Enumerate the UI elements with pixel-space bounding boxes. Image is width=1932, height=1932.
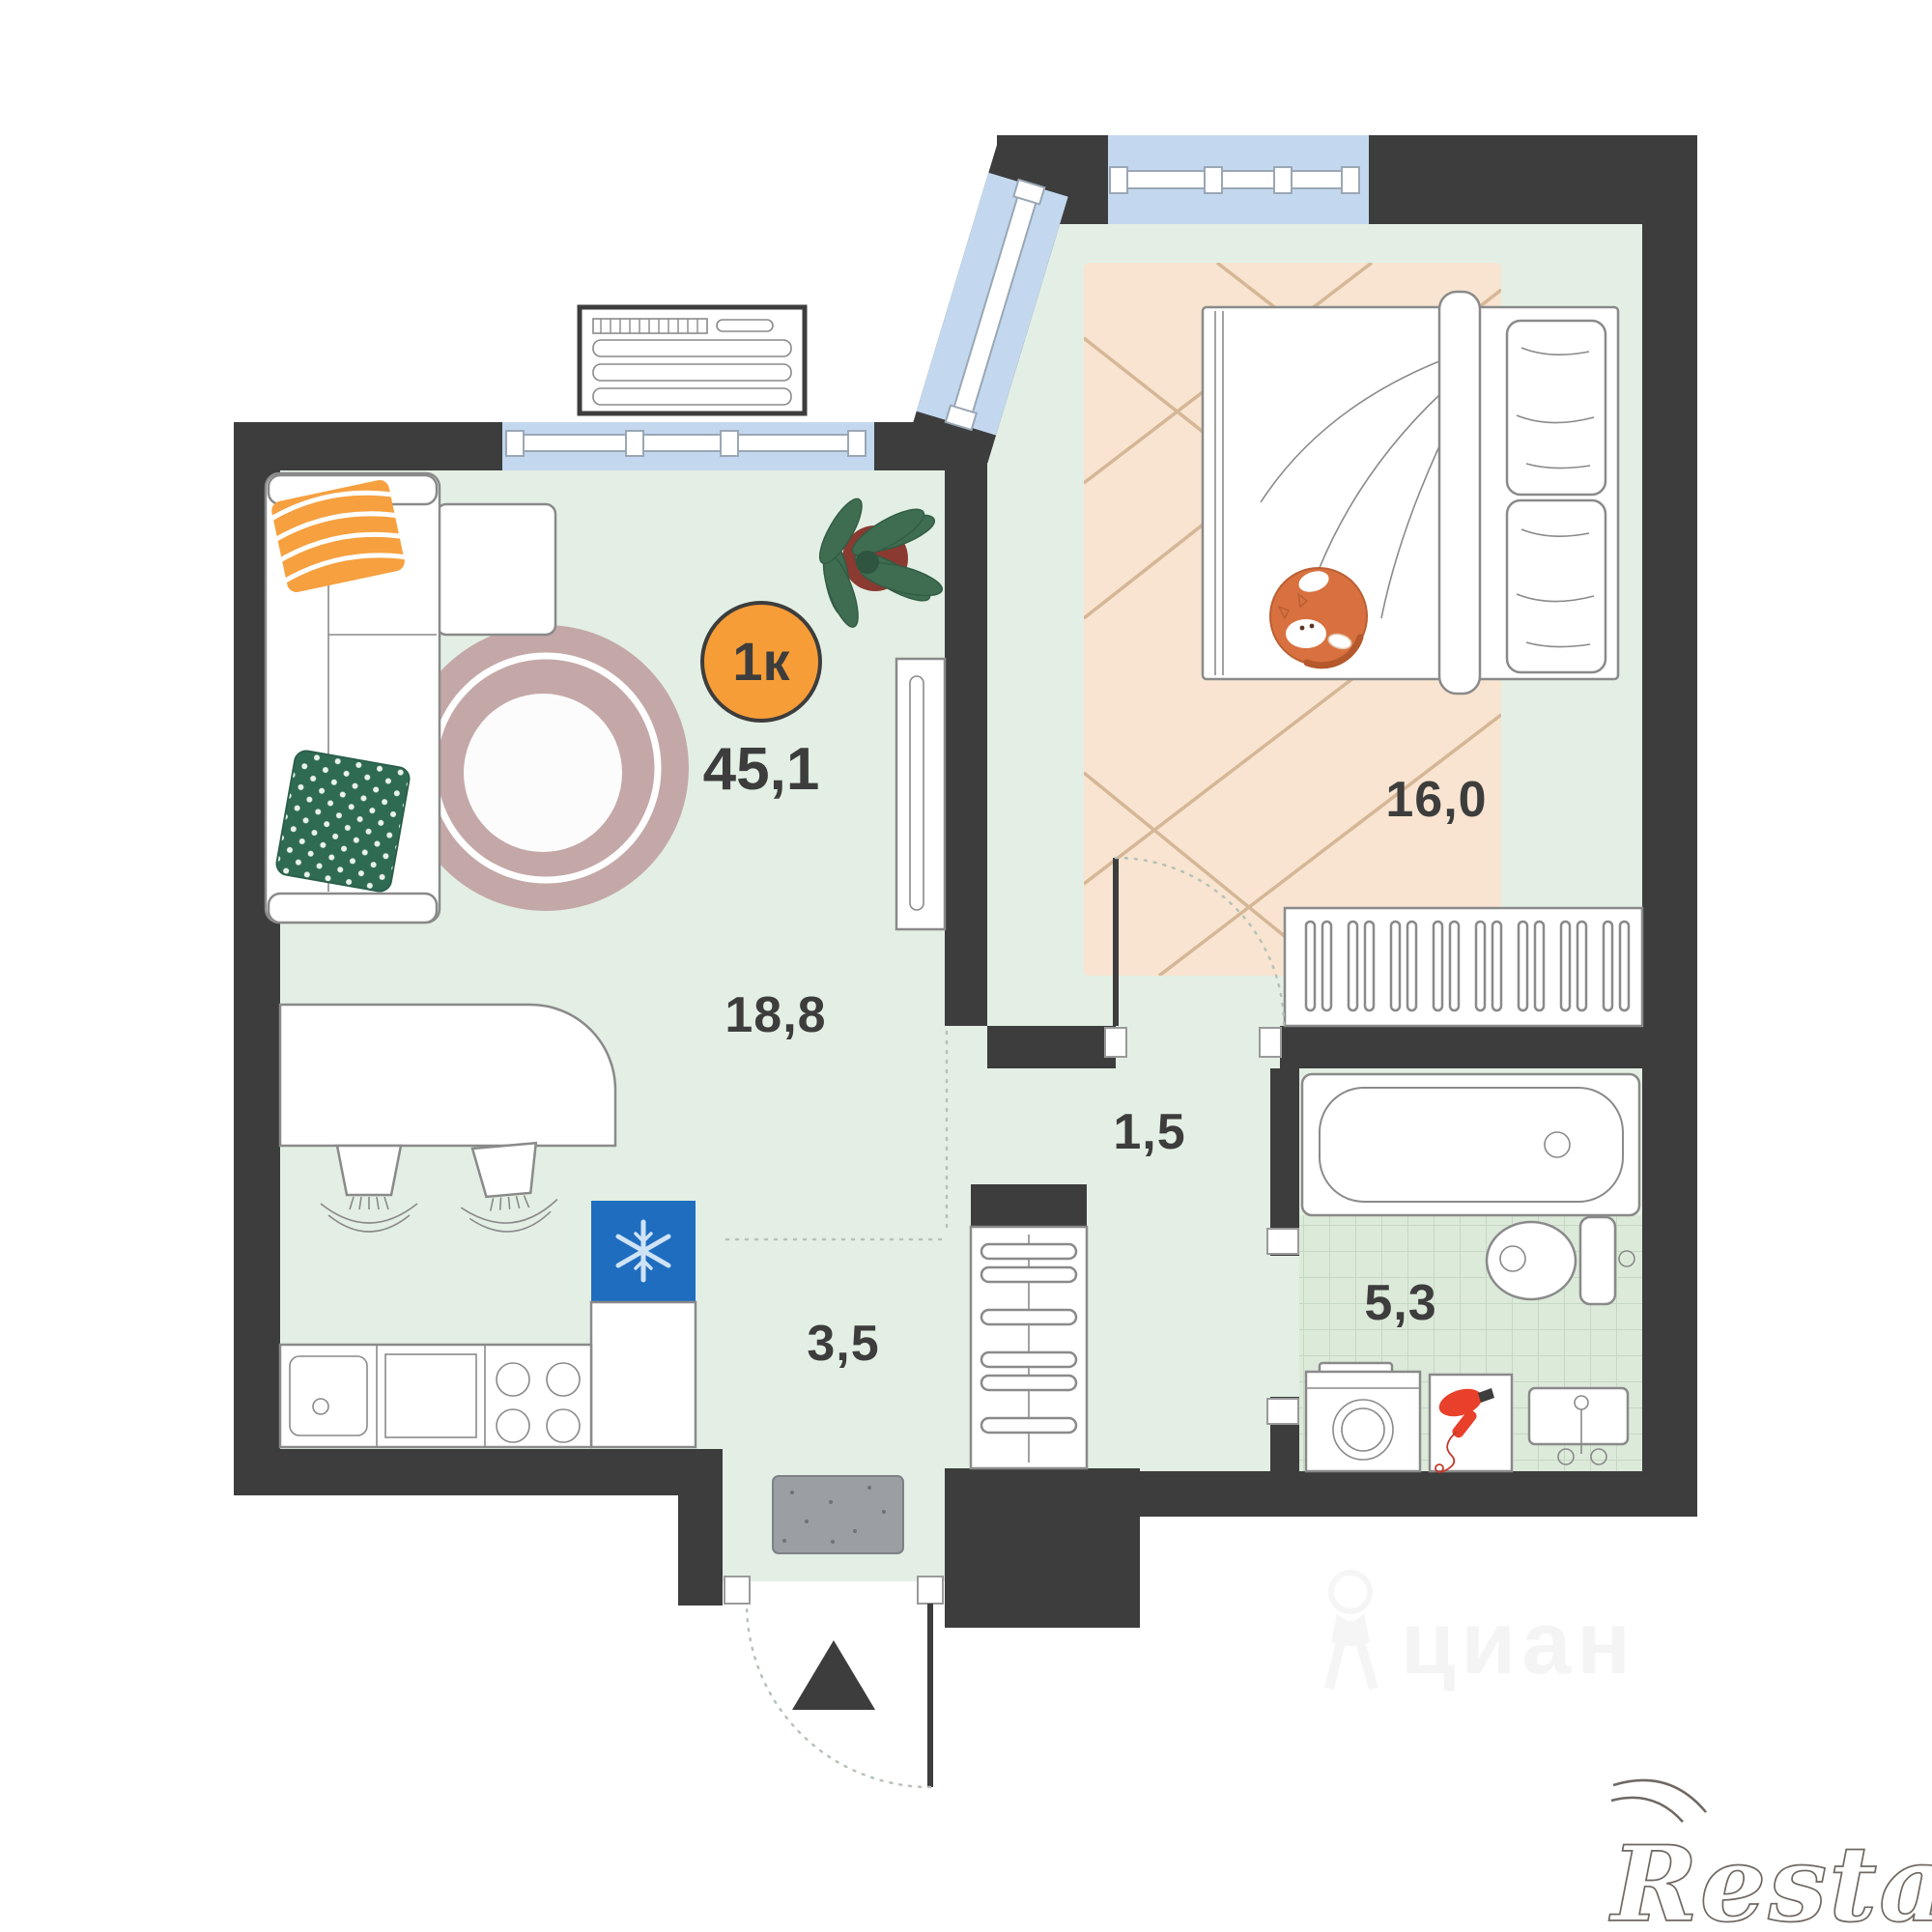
wall-entry-left: [678, 1449, 723, 1605]
cat-icon: [1270, 568, 1367, 666]
vanity-hairdryer: [1430, 1375, 1512, 1472]
bedroom-window: [1108, 135, 1369, 224]
floorplan: 1к 45,1 18,8 16,0 1,5 3,5 5,3 циан Resta…: [0, 0, 1932, 1932]
ac-unit-icon: [580, 307, 805, 413]
wall-living-right: [945, 454, 987, 1026]
living-area-label: 18,8: [724, 987, 826, 1043]
round-rug: [403, 625, 689, 911]
tv-console: [896, 659, 945, 929]
entrance-door: [724, 1577, 943, 1787]
dining-table: [280, 1005, 615, 1146]
wall-bedroom-bottom-right: [1280, 1026, 1642, 1068]
wall-bathroom-left-upper: [1270, 1068, 1299, 1256]
hallway-area-label: 1,5: [1113, 1104, 1185, 1160]
total-area-label: 45,1: [703, 736, 820, 803]
sofa-armrest-bottom: [269, 894, 437, 923]
living-window: [502, 422, 874, 470]
toilet: [1487, 1217, 1634, 1304]
pillow-green: [275, 750, 412, 894]
wall-bedroom-top-right: [1369, 135, 1642, 224]
kitchen-cabinet-tall: [591, 1302, 696, 1447]
wardrobe-slatted: [1285, 908, 1642, 1026]
bedroom-area-label: 16,0: [1385, 772, 1487, 828]
entry-area-label: 3,5: [807, 1316, 879, 1372]
portal-watermark: циан: [1329, 1573, 1636, 1692]
bathtub: [1302, 1074, 1639, 1215]
portal-watermark-text: циан: [1401, 1594, 1636, 1692]
wall-top-living-left: [234, 422, 502, 470]
wall-right-outer: [1642, 135, 1697, 1517]
bathroom-area-label: 5,3: [1364, 1275, 1436, 1331]
realtor-watermark-text: Restate: [1608, 1824, 1932, 1932]
washing-machine: [1306, 1363, 1420, 1471]
doormat: [773, 1476, 903, 1553]
wall-bathroom-bottom: [1140, 1471, 1697, 1517]
kitchen-counter: [280, 1345, 591, 1447]
wall-entry-right-block: [945, 1468, 1140, 1628]
toilet-tank: [1580, 1217, 1615, 1304]
type-badge-label: 1к: [732, 631, 790, 692]
wall-closet-top: [971, 1184, 1087, 1231]
sofa-chaise: [437, 504, 555, 635]
wall-kitchen-bottom: [234, 1449, 723, 1495]
entrance-arrow-icon: [792, 1640, 875, 1710]
wall-bedroom-bottom-left: [987, 1026, 1116, 1068]
bed-duvet-fold: [1439, 292, 1480, 694]
bed: [1203, 292, 1618, 694]
realtor-watermark: Restate: [1608, 1780, 1932, 1932]
entry-closet: [971, 1227, 1087, 1468]
